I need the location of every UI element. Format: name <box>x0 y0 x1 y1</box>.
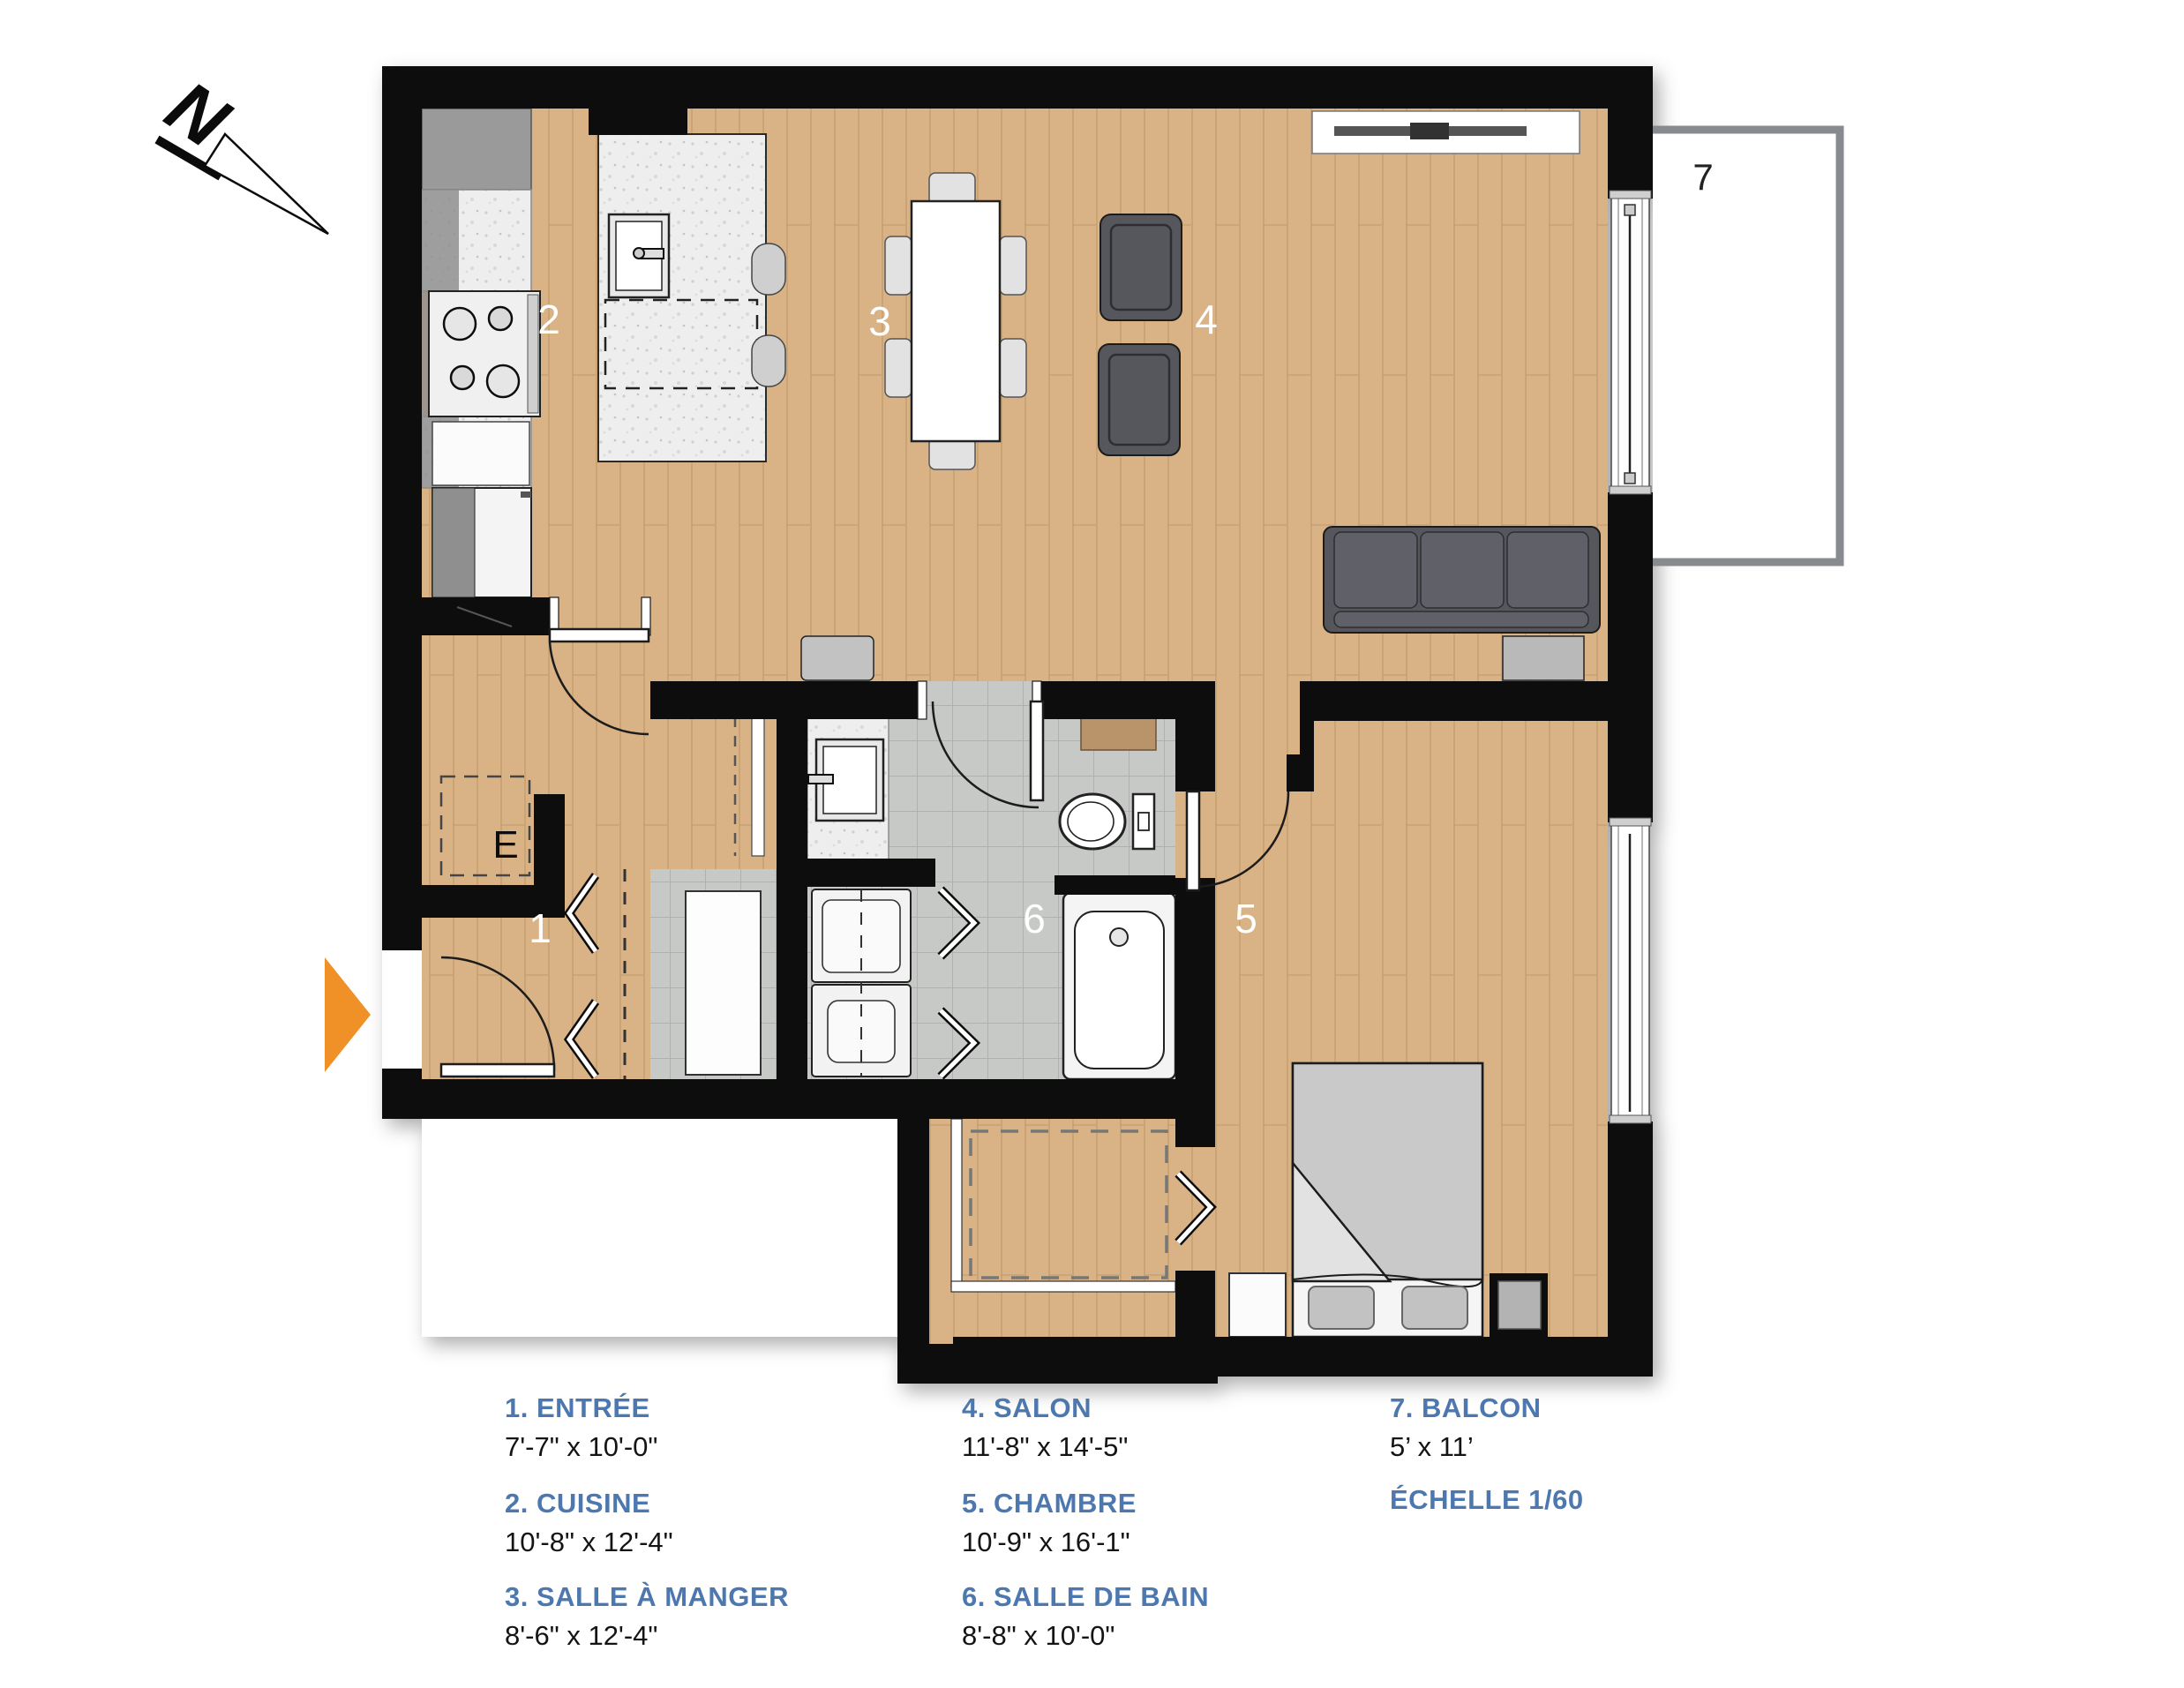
sofa <box>1324 527 1600 633</box>
pocket-door-track <box>752 697 764 856</box>
dining-chair <box>929 438 975 469</box>
dining-table <box>912 201 1000 441</box>
legend-dims: 8'-8" x 10'-0" <box>962 1620 1385 1652</box>
balcony-number-label: 7 <box>1692 156 1713 198</box>
exterior-mask <box>422 1119 897 1337</box>
linen-cabinet <box>686 891 761 1075</box>
closet-door-track <box>951 1119 962 1288</box>
legend-dims: 10'-9" x 16'-1" <box>962 1527 1385 1558</box>
burner-icon <box>487 365 519 397</box>
stove <box>429 291 540 416</box>
legend-dims: 5’ x 11’ <box>1390 1431 1813 1463</box>
pillow <box>1402 1287 1467 1329</box>
legend-dims: 10'-8" x 12'-4" <box>505 1527 928 1558</box>
fridge-handle-icon <box>521 491 531 498</box>
electrical-panel-label: E <box>492 823 518 867</box>
bathtub <box>1063 893 1175 1079</box>
legend-label: 4. SALON <box>962 1392 1385 1424</box>
legend-label: 5. CHAMBRE <box>962 1488 1385 1519</box>
closet-door-track <box>951 1281 1175 1292</box>
scale-label: ÉCHELLE 1/60 <box>1390 1484 1584 1516</box>
entrance-door-leaf <box>441 1064 554 1077</box>
legend-item-salle-a-manger: 3. SALLE À MANGER 8'-6" x 12'-4" <box>505 1581 928 1652</box>
toilet-tank <box>1133 794 1154 849</box>
toilet <box>1060 794 1154 849</box>
balcony: 7 <box>1653 126 1843 566</box>
side-table <box>1503 636 1584 680</box>
legend-dims: 11'-8" x 14'-5" <box>962 1431 1385 1463</box>
room-label-salle-a-manger: 3 <box>868 298 891 344</box>
entrance-arrow-icon <box>325 957 371 1072</box>
dining-chair <box>885 236 912 295</box>
drain-icon <box>1110 928 1128 946</box>
legend-label: 2. CUISINE <box>505 1488 928 1519</box>
legend-label: 3. SALLE À MANGER <box>505 1581 928 1613</box>
fridge <box>432 488 531 597</box>
room-label-entree: 1 <box>529 905 552 951</box>
legend-item-balcon: 7. BALCON 5’ x 11’ <box>1390 1392 1813 1463</box>
legend-label: 6. SALLE DE BAIN <box>962 1581 1385 1613</box>
legend-item-salle-de-bain: 6. SALLE DE BAIN 8'-8" x 10'-0" <box>962 1581 1385 1652</box>
room-label-cuisine: 2 <box>537 296 560 342</box>
bathroom-door-leaf <box>1031 701 1043 800</box>
dining-chair <box>929 173 975 205</box>
door-jamb <box>918 681 927 719</box>
burner-icon <box>489 307 512 330</box>
legend-item-entree: 1. ENTRÉE 7'-7" x 10'-0" <box>505 1392 928 1463</box>
room-label-salle-de-bain: 6 <box>1023 896 1046 942</box>
floor-plan-page: 1 2 3 4 5 6 E 7 N 1. ENTRÉE 7'-7" x 10'-… <box>0 0 2184 1688</box>
bedroom-door-leaf <box>1187 791 1199 890</box>
door-leaf <box>550 629 649 641</box>
bedside-cube <box>1498 1281 1541 1329</box>
tv-mount-icon <box>1410 123 1449 139</box>
north-arrow-icon: N <box>152 64 328 234</box>
legend-dims: 7'-7" x 10'-0" <box>505 1431 928 1463</box>
balcony-floor <box>1653 126 1843 566</box>
room-label-chambre: 5 <box>1235 896 1257 942</box>
legend-item-cuisine: 2. CUISINE 10'-8" x 12'-4" <box>505 1488 928 1558</box>
armchair <box>1099 344 1180 455</box>
legend-label: 7. BALCON <box>1390 1392 1813 1424</box>
bedroom-window <box>1610 818 1651 1123</box>
dining-chair <box>1000 339 1026 397</box>
kitchen-counter-top <box>422 109 531 190</box>
legend-item-chambre: 5. CHAMBRE 10'-9" x 16'-1" <box>962 1488 1385 1558</box>
burner-icon <box>444 308 476 340</box>
armchair <box>1100 214 1182 320</box>
bed <box>1293 1063 1482 1337</box>
nightstand <box>1229 1273 1286 1337</box>
kitchen-cabinet <box>432 422 529 485</box>
window-handle-icon <box>1625 473 1635 484</box>
legend-label: 1. ENTRÉE <box>505 1392 928 1424</box>
living-room-window <box>1610 191 1651 494</box>
room-label-salon: 4 <box>1195 296 1218 342</box>
vanity-sink <box>808 739 883 821</box>
washer-dryer-stack <box>812 889 911 1077</box>
north-needle <box>205 134 328 234</box>
pillow <box>1309 1287 1374 1329</box>
wood-floor-closet-room <box>929 1103 1175 1346</box>
apartment-unit: 1 2 3 4 5 6 E <box>382 66 1653 1384</box>
kitchen-island <box>598 134 766 461</box>
dining-chair <box>885 339 912 397</box>
floor-mat <box>801 636 874 680</box>
faucet-icon <box>808 775 833 784</box>
legend-item-salon: 4. SALON 11'-8" x 14'-5" <box>962 1392 1385 1463</box>
bar-stool <box>752 244 785 295</box>
dining-chair <box>1000 236 1026 295</box>
window-handle-icon <box>1625 205 1635 215</box>
bar-stool <box>752 335 785 386</box>
burner-icon <box>451 366 474 389</box>
legend-dims: 8'-6" x 12'-4" <box>505 1620 928 1652</box>
entrance-opening <box>382 950 422 1069</box>
